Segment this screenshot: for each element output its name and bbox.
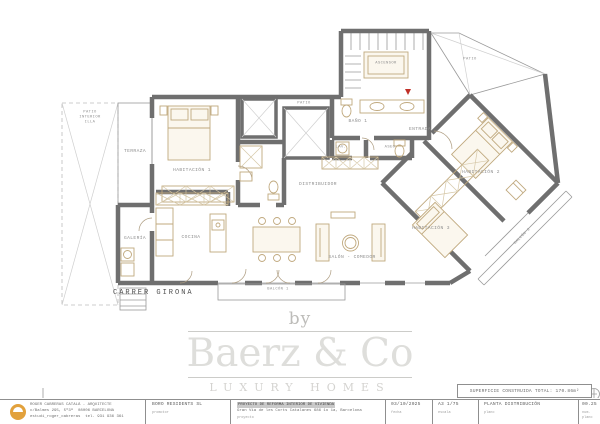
project-address: Gran Via de les Corts Catalanes 686 1o 1… — [237, 408, 382, 414]
room-label-balcon-1: BALCÓN 1 — [267, 288, 288, 293]
red-marker — [405, 89, 411, 95]
title-block-divider — [230, 400, 231, 424]
brand-watermark: by Baerz & Co LUXURY HOMES — [180, 309, 420, 394]
sheet-name-field: PLANTA DISTRIBUCIÓN plano — [484, 402, 574, 416]
street-label: CARRER GIRONA — [113, 289, 194, 297]
promoter-value: BORO RESIDENTS SL — [152, 402, 202, 407]
watermark-brand: Baerz & Co — [180, 334, 420, 375]
promoter-label: promotor — [152, 411, 227, 416]
surface-total-text: SUPERFICIE CONSTRUIDA TOTAL: 170.86m² — [470, 389, 579, 394]
watermark-by: by — [180, 309, 420, 329]
room-label-bano-1: BAÑO 1 — [349, 119, 368, 125]
room-label-distribuidor: DISTRIBUIDOR — [299, 182, 337, 188]
room-label-habitacion-3: HABITACIÓN 3 — [412, 226, 450, 232]
room-label-entrada: ENTRADA — [409, 127, 431, 133]
room-label-salon-comedor: SALÓN - COMEDOR — [328, 255, 375, 261]
architect-logo-icon — [9, 403, 27, 421]
date-field: 03/10/2025 fecha — [391, 402, 429, 416]
room-label-habitacion-1: HABITACIÓN 1 — [173, 168, 211, 174]
title-block-divider — [432, 400, 433, 424]
room-label-terraza: TERRAZA — [124, 149, 146, 155]
sheet-number-label: num. plano — [582, 411, 599, 422]
sheet-number-value: 00.25 — [582, 402, 597, 407]
sheet-number-field: 00.25 num. plano — [582, 402, 599, 421]
sheet-name-value: PLANTA DISTRIBUCIÓN — [484, 402, 540, 407]
room-label-ascensor: ASCENSOR — [375, 62, 396, 67]
scale-field: A3 1/75 escala — [438, 402, 474, 416]
surface-total-badge: SUPERFICIE CONSTRUIDA TOTAL: 170.86m² — [457, 384, 592, 398]
promoter-field: BORO RESIDENTS SL promotor — [152, 402, 227, 416]
room-label-habitacion-2: HABITACIÓN 2 — [462, 170, 500, 176]
project-field: PROYECTO DE REFORMA INTERIOR DE VIVIENDA… — [237, 402, 382, 421]
architect-handle: estudi_roger_cabreras — [30, 415, 80, 419]
sheet-name-label: plano — [484, 411, 574, 416]
scale-value: A3 1/75 — [438, 402, 459, 407]
architect-city: 08006 BARCELONA — [78, 409, 114, 413]
room-label-lavadero: LAV. — [336, 146, 347, 151]
scale-label: escala — [438, 411, 474, 416]
room-label-patio: PATIO — [297, 102, 310, 107]
title-block: ROGER CABRERAS CATALÀ - ARQUITECTE c/Bal… — [0, 399, 600, 424]
watermark-tagline: LUXURY HOMES — [180, 381, 420, 394]
room-label-cocina: COCINA — [182, 235, 201, 241]
date-value: 03/10/2025 — [391, 402, 421, 407]
title-block-divider — [478, 400, 479, 424]
title-block-divider — [578, 400, 579, 424]
project-label: proyecto — [237, 416, 382, 421]
architect-address: c/Balmes 295, 5º3ª — [30, 409, 73, 413]
room-label-galeria: GALERÍA — [124, 236, 146, 242]
room-label-patio-superior: PATIO — [463, 58, 476, 63]
room-label-aseo: ASEO — [385, 146, 396, 151]
title-block-divider — [145, 400, 146, 424]
drawing-sheet: TERRAZA HABITACIÓN 1 GALERÍA COCINA SALÓ… — [0, 0, 600, 424]
date-label: fecha — [391, 411, 429, 416]
architect-phone: tel. 931 936 361 — [85, 415, 123, 419]
architect-info: ROGER CABRERAS CATALÀ - ARQUITECTE c/Bal… — [30, 402, 142, 420]
title-block-divider — [385, 400, 386, 424]
room-label-patio-illa: PATIO INTERIOR ILLA — [79, 111, 100, 126]
watermark-rule-bottom — [188, 377, 412, 378]
